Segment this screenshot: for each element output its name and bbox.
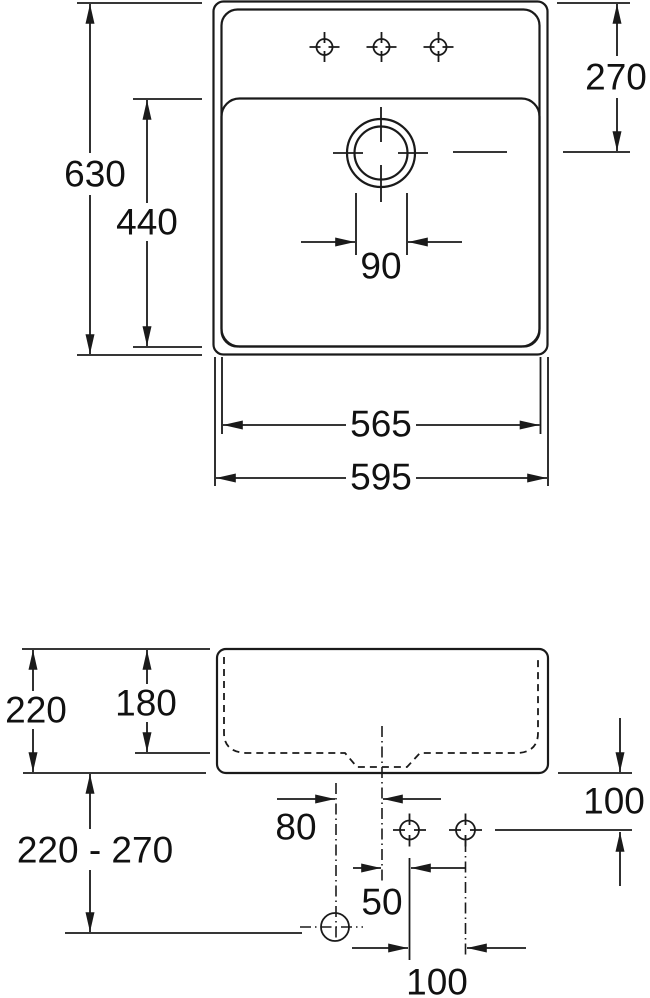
top-view: 630 440 270 90 565 bbox=[64, 2, 647, 498]
dim-label-waste-outlet-height: 220 - 270 bbox=[17, 830, 173, 871]
dimension-waste-outlet-height: 220 - 270 bbox=[17, 774, 302, 933]
dim-label-inner-basin-width: 565 bbox=[350, 404, 412, 445]
dim-label-wall-outlet-offset: 80 bbox=[275, 807, 316, 848]
drawing-canvas: 630 440 270 90 565 bbox=[0, 0, 650, 998]
tap-hole-marker bbox=[424, 32, 454, 62]
dim-label-top-edge-to-drain: 270 bbox=[585, 57, 647, 98]
supply-hole-marker bbox=[449, 814, 482, 847]
dim-label-hole-spacing: 100 bbox=[406, 962, 468, 998]
dim-label-center-to-first-hole: 50 bbox=[361, 882, 402, 923]
dimension-holes-below-bottom: 100 bbox=[495, 718, 645, 886]
technical-drawing-page: 630 440 270 90 565 bbox=[0, 0, 650, 998]
dimension-inner-basin-width: 565 bbox=[222, 357, 541, 445]
dimension-drain-diameter: 90 bbox=[301, 193, 462, 287]
side-view: 220 180 220 - 270 100 80 bbox=[5, 649, 645, 998]
tap-hole-marker bbox=[310, 32, 340, 62]
dim-label-drain-diameter: 90 bbox=[360, 246, 401, 287]
dimension-overall-height: 630 bbox=[64, 3, 202, 355]
dim-label-overall-depth: 220 bbox=[5, 690, 67, 731]
drain-hole bbox=[333, 107, 507, 202]
dimension-inner-basin-height: 440 bbox=[116, 99, 202, 347]
dimension-top-edge-to-drain: 270 bbox=[557, 3, 647, 152]
supply-hole-marker bbox=[393, 814, 426, 847]
tap-hole-marker bbox=[367, 32, 397, 62]
dim-label-basin-inner-depth: 180 bbox=[115, 683, 177, 724]
dim-label-inner-basin-height: 440 bbox=[116, 202, 178, 243]
dimension-overall-depth: 220 bbox=[5, 649, 210, 773]
dimension-basin-inner-depth: 180 bbox=[115, 650, 210, 753]
dim-label-overall-width: 595 bbox=[350, 457, 412, 498]
dimension-hole-spacing: 100 bbox=[352, 948, 526, 998]
basin-hidden-profile bbox=[224, 657, 538, 767]
dim-label-overall-height: 630 bbox=[64, 154, 126, 195]
dim-label-holes-below-bottom: 100 bbox=[583, 781, 645, 822]
